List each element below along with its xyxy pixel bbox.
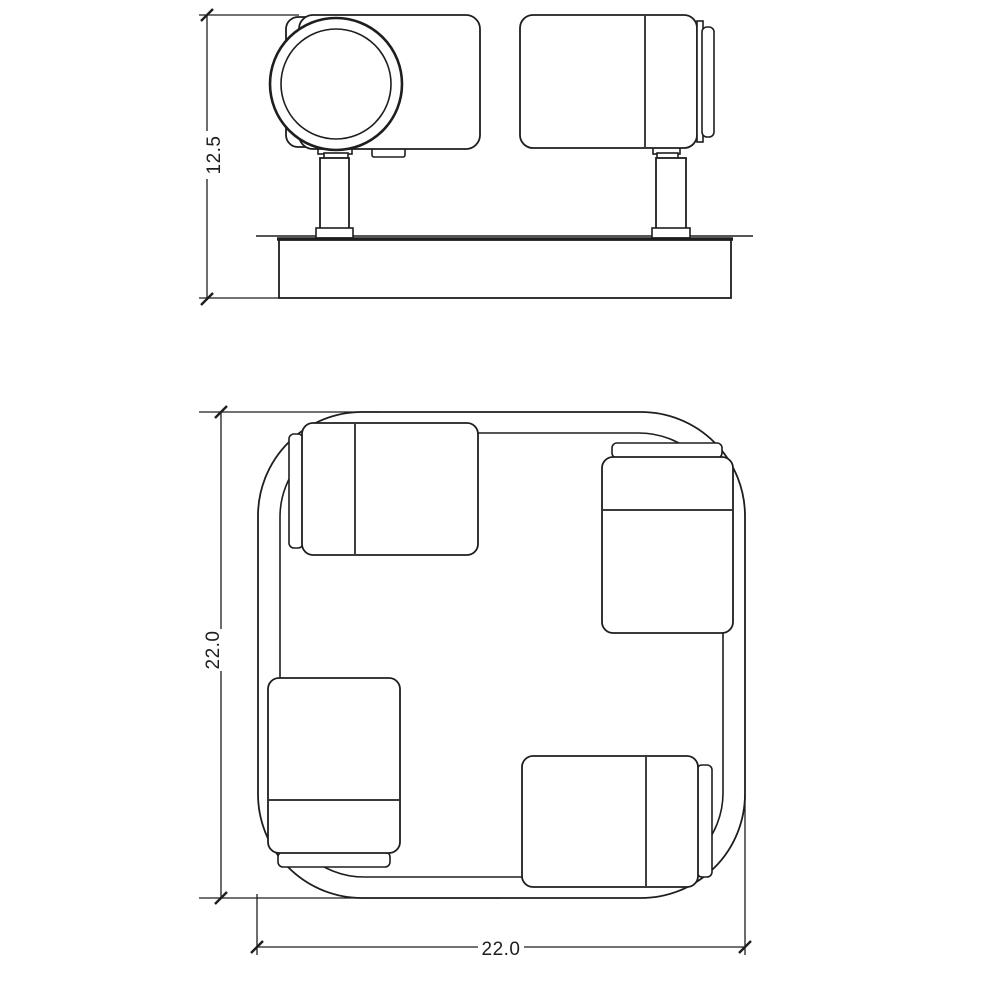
spot-body bbox=[268, 678, 400, 853]
spotlight-dimension-drawing: 12.5 22. bbox=[0, 0, 1000, 1000]
right-spot-housing bbox=[520, 15, 697, 148]
spot-body bbox=[522, 756, 698, 887]
spot-body bbox=[302, 423, 478, 555]
plan-vertical-dimension-label: 22.0 bbox=[203, 631, 224, 670]
spot-body bbox=[602, 457, 733, 633]
height-dimension-label: 12.5 bbox=[204, 136, 225, 175]
right-spot-stem bbox=[656, 158, 686, 231]
side-elevation-view: 12.5 bbox=[199, 9, 753, 305]
plan-spot-top-left bbox=[289, 423, 478, 555]
plan-horizontal-dimension-label: 22.0 bbox=[482, 939, 521, 960]
spot-back-cap bbox=[612, 443, 722, 458]
top-plan-view: 22.0 bbox=[199, 406, 751, 960]
spot-back-cap bbox=[697, 765, 712, 877]
technical-drawing-page: 12.5 22. bbox=[0, 0, 1000, 1000]
right-spot-back-cap bbox=[702, 27, 714, 137]
plan-spot-bottom-right bbox=[522, 756, 712, 887]
plan-spot-bottom-left bbox=[268, 678, 400, 867]
base-plate-side bbox=[279, 240, 731, 298]
left-spot-stem bbox=[320, 158, 349, 231]
left-spot-lens-ring-outer bbox=[270, 18, 402, 150]
plan-spot-top-right bbox=[602, 443, 733, 633]
left-spot-foot bbox=[316, 228, 353, 238]
spot-back-cap bbox=[289, 434, 303, 548]
spot-back-cap bbox=[278, 852, 390, 867]
right-spot-foot bbox=[652, 228, 690, 238]
